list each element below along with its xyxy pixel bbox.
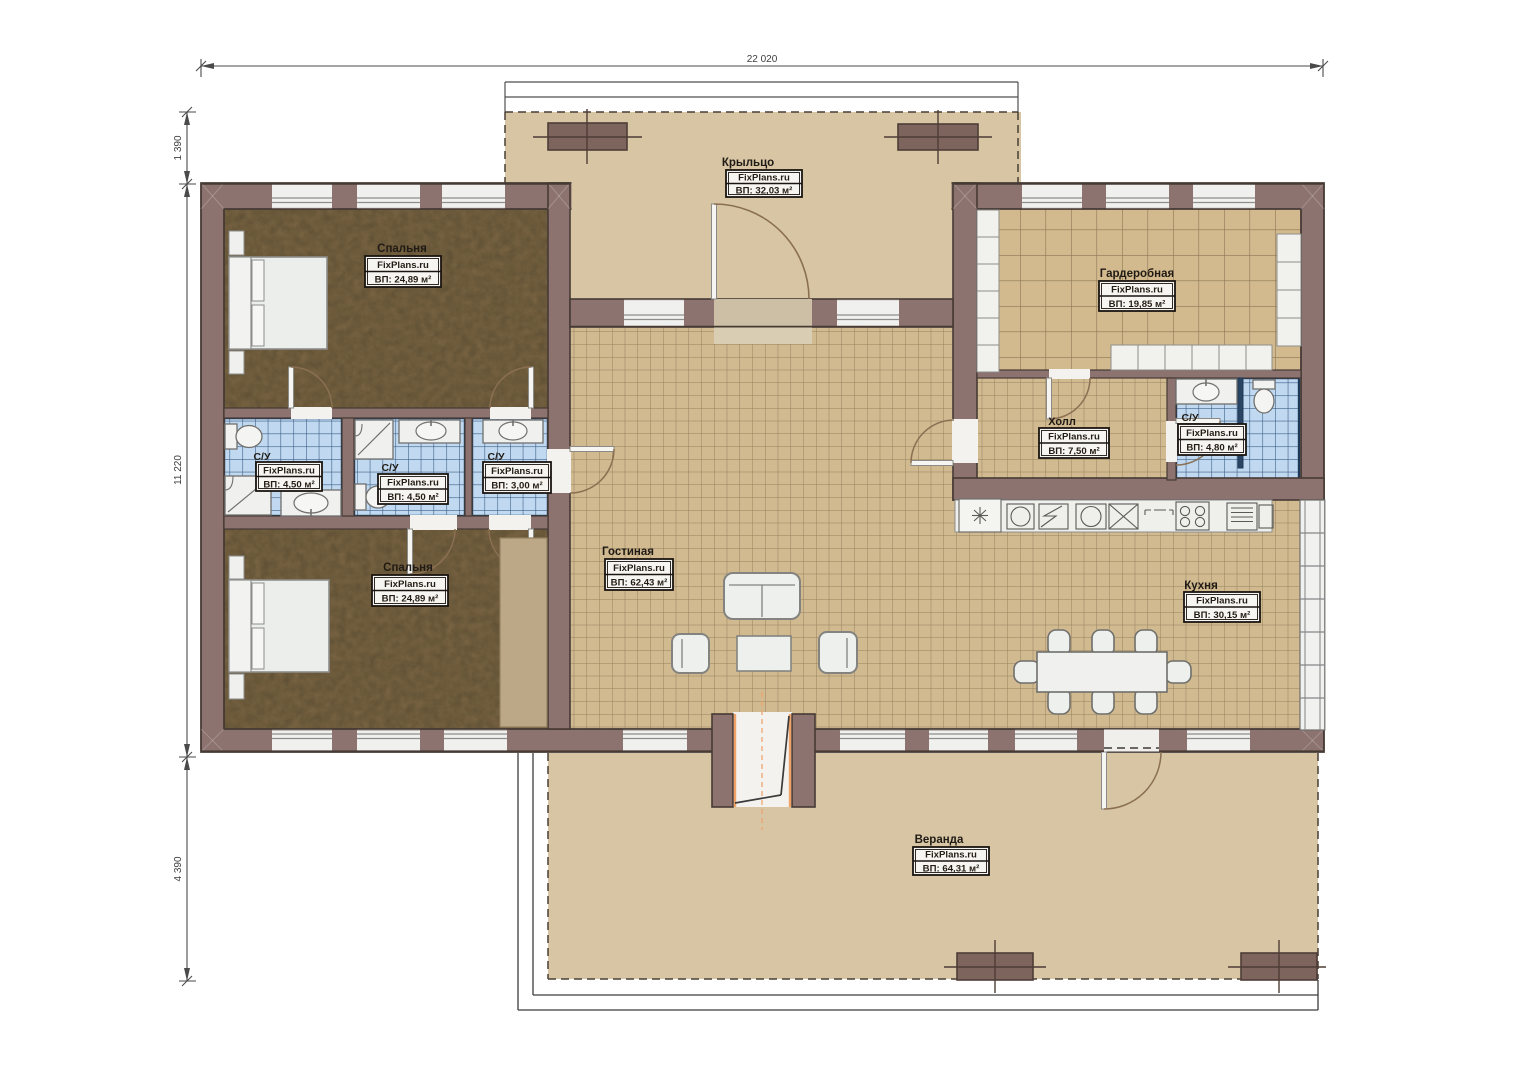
- svg-text:FixPlans.ru: FixPlans.ru: [491, 466, 543, 477]
- svg-text:1 390: 1 390: [173, 135, 184, 160]
- svg-text:22 020: 22 020: [747, 54, 778, 65]
- svg-text:ВП: 30,15 м²: ВП: 30,15 м²: [1194, 610, 1251, 621]
- svg-text:FixPlans.ru: FixPlans.ru: [1111, 285, 1163, 296]
- svg-text:FixPlans.ru: FixPlans.ru: [738, 173, 790, 184]
- svg-text:ВП: 4,80 м²: ВП: 4,80 м²: [1186, 443, 1237, 454]
- svg-text:FixPlans.ru: FixPlans.ru: [387, 478, 439, 489]
- svg-text:ВП: 7,50 м²: ВП: 7,50 м²: [1048, 446, 1099, 457]
- svg-text:Гардеробная: Гардеробная: [1100, 268, 1174, 280]
- svg-text:Холл: Холл: [1048, 416, 1076, 428]
- svg-text:С/У: С/У: [381, 462, 399, 474]
- svg-text:FixPlans.ru: FixPlans.ru: [1048, 432, 1100, 443]
- svg-text:FixPlans.ru: FixPlans.ru: [1196, 596, 1248, 607]
- svg-text:Гостиная: Гостиная: [602, 546, 654, 558]
- svg-text:ВП: 4,50 м²: ВП: 4,50 м²: [387, 492, 438, 503]
- svg-text:FixPlans.ru: FixPlans.ru: [384, 579, 436, 590]
- svg-text:FixPlans.ru: FixPlans.ru: [263, 466, 315, 477]
- svg-text:Веранда: Веранда: [915, 834, 964, 846]
- svg-text:Крыльцо: Крыльцо: [722, 157, 774, 169]
- svg-text:ВП: 3,00 м²: ВП: 3,00 м²: [491, 481, 542, 492]
- svg-text:4 390: 4 390: [173, 856, 184, 881]
- svg-text:ВП: 64,31 м²: ВП: 64,31 м²: [923, 864, 980, 875]
- svg-text:FixPlans.ru: FixPlans.ru: [377, 260, 429, 271]
- svg-text:FixPlans.ru: FixPlans.ru: [925, 850, 977, 861]
- svg-text:ВП: 62,43 м²: ВП: 62,43 м²: [611, 578, 668, 589]
- svg-text:ВП: 4,50 м²: ВП: 4,50 м²: [263, 480, 314, 491]
- svg-text:Спальня: Спальня: [383, 562, 433, 574]
- svg-text:ВП: 32,03 м²: ВП: 32,03 м²: [736, 186, 793, 197]
- svg-text:С/У: С/У: [1181, 412, 1199, 424]
- svg-text:ВП: 24,89 м²: ВП: 24,89 м²: [375, 275, 432, 286]
- svg-text:FixPlans.ru: FixPlans.ru: [613, 563, 665, 574]
- svg-text:Спальня: Спальня: [377, 243, 427, 255]
- svg-text:Кухня: Кухня: [1184, 580, 1218, 592]
- svg-text:11 220: 11 220: [173, 455, 184, 485]
- svg-text:ВП: 24,89 м²: ВП: 24,89 м²: [382, 594, 439, 605]
- svg-text:FixPlans.ru: FixPlans.ru: [1186, 428, 1238, 439]
- svg-text:ВП: 19,85 м²: ВП: 19,85 м²: [1109, 299, 1166, 310]
